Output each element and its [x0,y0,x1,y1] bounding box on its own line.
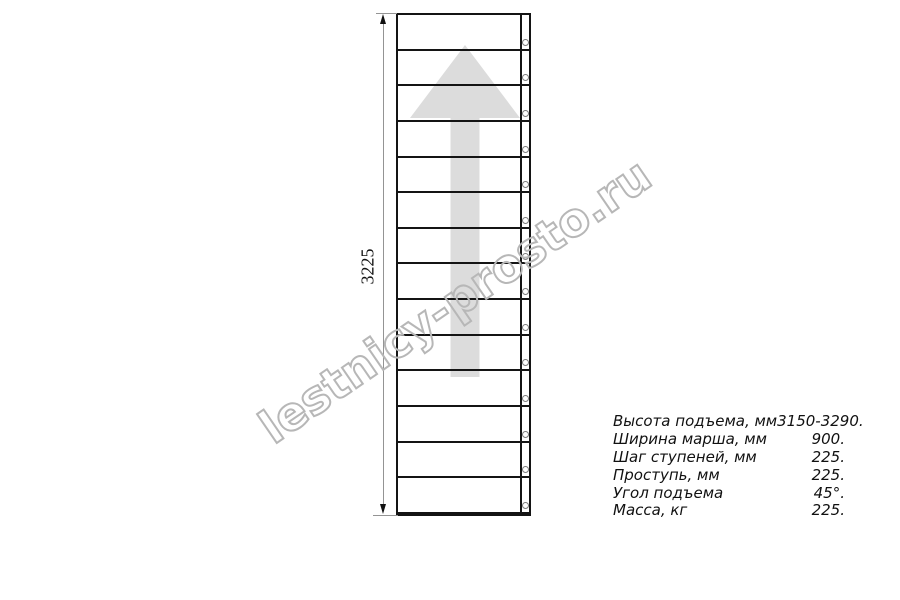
spec-value: 225. [812,502,845,520]
bolt-hole-icon [522,217,529,224]
stair-tread [398,15,529,51]
spec-row-mass: Масса, кг 225. [613,502,845,520]
stair-tread [398,122,529,158]
stair-tread [398,443,529,479]
spec-value: 225. [812,449,845,467]
stair-tread [398,158,529,194]
spec-value: 45°. [814,485,845,503]
bolt-hole-icon [522,324,529,331]
spec-row-tread: Проступь, мм 225. [613,467,845,485]
spec-value: 3150-3290. [777,413,864,431]
stair-flight [396,13,531,516]
dimension-line [383,17,384,511]
dimension-arrowhead-down-icon [380,504,386,514]
stringer-divider-line [520,15,522,514]
bolt-hole-icon [522,110,529,117]
bolt-hole-icon [522,39,529,46]
spec-label: Ширина марша, мм [613,431,767,449]
stair-tread [398,264,529,300]
height-dimension-label: 3225 [358,237,379,297]
stair-tread [398,300,529,336]
stair-tread [398,407,529,443]
spec-label: Шаг ступеней, мм [613,449,757,467]
spec-label: Высота подъема, мм [613,413,777,431]
bolt-hole-icon [522,431,529,438]
bolt-hole-icon [522,502,529,509]
spec-row-height: Высота подъема, мм 3150-3290. [613,413,845,431]
stair-tread [398,336,529,372]
stair-tread [398,51,529,87]
stair-tread [398,86,529,122]
spec-label: Проступь, мм [613,467,720,485]
stair-tread [398,371,529,407]
bolt-hole-icon [522,146,529,153]
spec-row-step-pitch: Шаг ступеней, мм 225. [613,449,845,467]
bolt-hole-icon [522,395,529,402]
spec-value: 900. [812,431,845,449]
stair-tread [398,229,529,265]
spec-label: Масса, кг [613,502,687,520]
spec-label: Угол подъема [613,485,723,503]
stair-tread [398,478,529,514]
dimension-arrowhead-up-icon [380,14,386,24]
drawing-canvas: 3225 lestnicy-prosto.ru Высота подъема, … [0,0,900,600]
spec-value: 225. [812,467,845,485]
stair-tread [398,193,529,229]
bolt-hole-icon [522,253,529,260]
spec-table: Высота подъема, мм 3150-3290. Ширина мар… [613,413,845,520]
spec-row-angle: Угол подъема 45°. [613,485,845,503]
dimension-extension-line-bottom [373,515,398,516]
spec-row-width: Ширина марша, мм 900. [613,431,845,449]
